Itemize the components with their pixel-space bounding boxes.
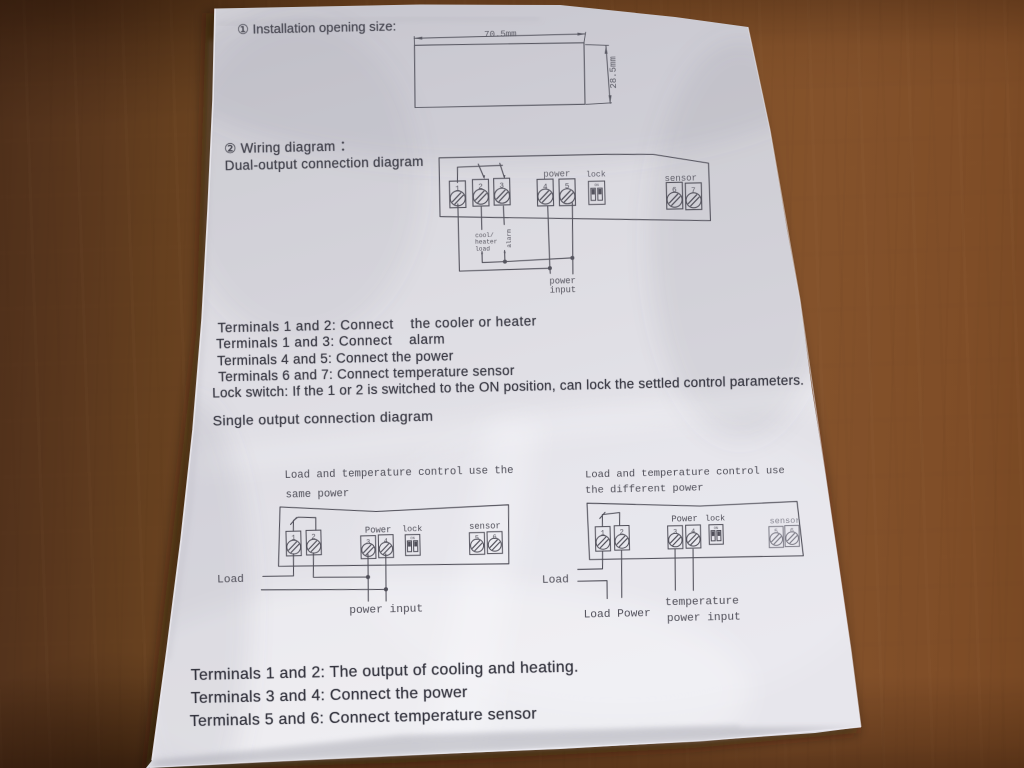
svg-text:sensor: sensor [769,516,800,527]
svg-text:the different power: the different power [585,482,704,497]
svg-text:2: 2 [620,529,624,537]
svg-text:Load and temperature control u: Load and temperature control use [585,465,785,481]
svg-text:4: 4 [691,528,695,536]
svg-text:5: 5 [774,528,778,535]
svg-text:Load: Load [542,574,569,587]
svg-text:lock: lock [705,513,725,523]
svg-text:1: 1 [601,530,605,538]
svg-text:Power: Power [671,514,698,525]
svg-text:Load Power: Load Power [584,608,651,621]
svg-text:3: 3 [673,529,677,537]
svg-text:power input: power input [667,612,741,626]
svg-text:6: 6 [790,527,794,534]
svg-text:ON: ON [714,527,718,531]
svg-text:temperature: temperature [665,596,739,610]
